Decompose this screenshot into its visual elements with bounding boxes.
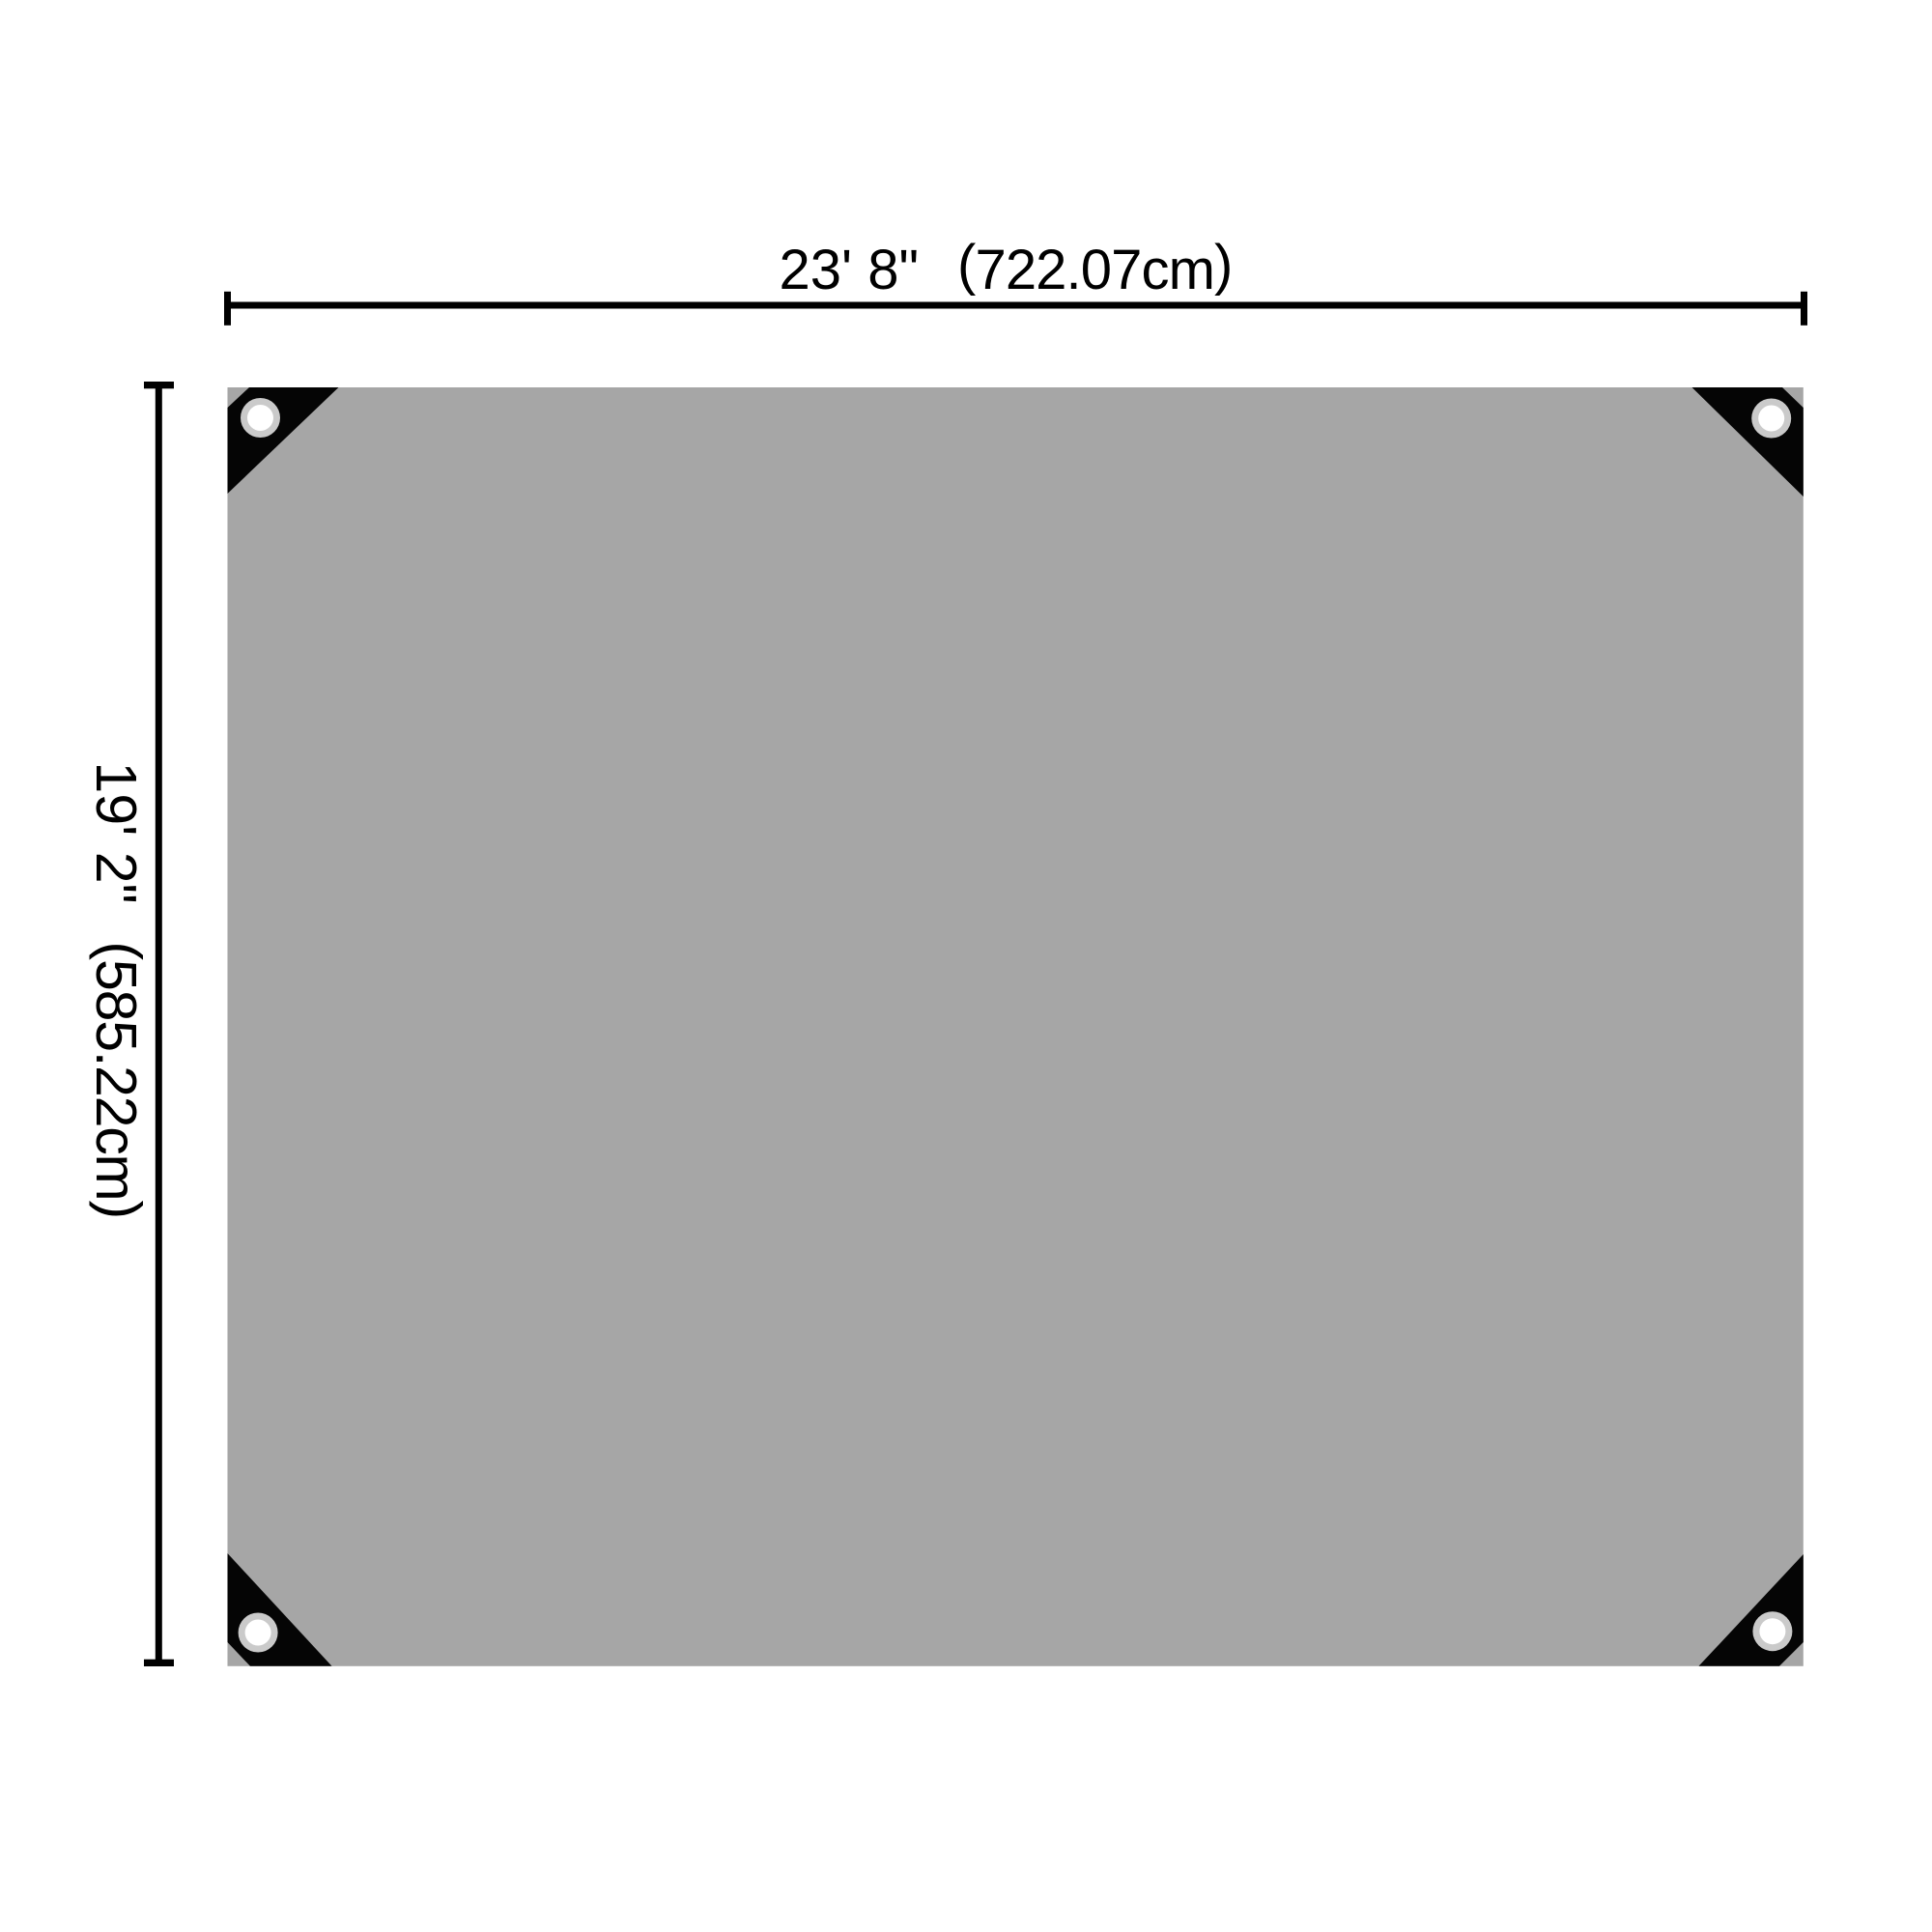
svg-text:19' 2"(585.22cm): 19' 2"(585.22cm) (84, 762, 153, 1218)
svg-text:23' 8"(722.07cm): 23' 8"(722.07cm) (780, 234, 1233, 301)
